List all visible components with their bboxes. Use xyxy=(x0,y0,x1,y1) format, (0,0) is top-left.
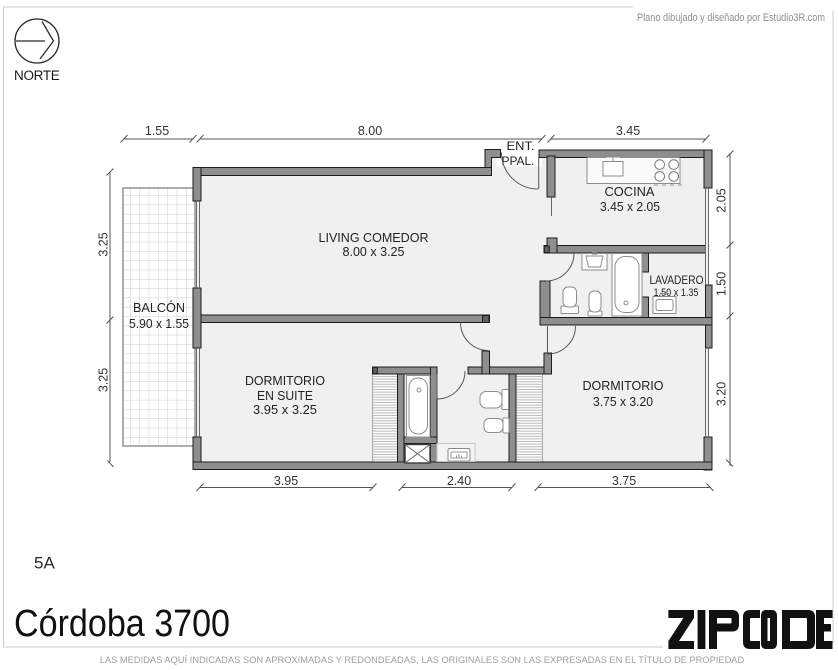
svg-text:NORTE: NORTE xyxy=(14,68,60,83)
svg-text:PPAL.: PPAL. xyxy=(502,156,535,168)
svg-text:3.95: 3.95 xyxy=(274,474,298,488)
svg-text:Córdoba 3700: Córdoba 3700 xyxy=(14,603,230,645)
svg-text:COCINA: COCINA xyxy=(605,184,655,199)
svg-text:3.20: 3.20 xyxy=(715,382,729,406)
svg-text:5.90 x 1.55: 5.90 x 1.55 xyxy=(129,316,189,331)
svg-text:8.00: 8.00 xyxy=(358,124,382,138)
svg-text:LAVADERO: LAVADERO xyxy=(650,273,704,287)
svg-text:8.00 x 3.25: 8.00 x 3.25 xyxy=(343,244,405,259)
svg-text:3.45: 3.45 xyxy=(616,124,640,138)
svg-text:2.05: 2.05 xyxy=(715,188,729,212)
svg-text:Plano dibujado y diseñado por: Plano dibujado y diseñado por Estudio3R.… xyxy=(637,12,825,24)
svg-text:1.55: 1.55 xyxy=(145,124,169,138)
svg-text:3.25: 3.25 xyxy=(97,232,111,256)
svg-text:3.25: 3.25 xyxy=(97,368,111,392)
svg-text:5A: 5A xyxy=(34,554,55,573)
svg-text:3.75 x 3.20: 3.75 x 3.20 xyxy=(593,394,653,409)
svg-text:1.50: 1.50 xyxy=(715,272,729,296)
svg-text:2.40: 2.40 xyxy=(447,474,471,488)
svg-text:3.45 x 2.05: 3.45 x 2.05 xyxy=(600,199,660,214)
svg-text:ENT.: ENT. xyxy=(507,141,535,153)
svg-text:3.95 x 3.25: 3.95 x 3.25 xyxy=(253,402,317,417)
svg-text:LIVING COMEDOR: LIVING COMEDOR xyxy=(319,230,429,245)
svg-text:EN SUITE: EN SUITE xyxy=(257,388,313,403)
svg-text:DORMITORIO: DORMITORIO xyxy=(583,378,664,393)
svg-text:BALCÓN: BALCÓN xyxy=(133,300,185,315)
svg-text:LAS MEDIDAS AQUÍ INDICADAS SON: LAS MEDIDAS AQUÍ INDICADAS SON APROXIMAD… xyxy=(100,655,745,665)
svg-text:3.75: 3.75 xyxy=(612,474,636,488)
svg-text:DORMITORIO: DORMITORIO xyxy=(245,373,325,388)
